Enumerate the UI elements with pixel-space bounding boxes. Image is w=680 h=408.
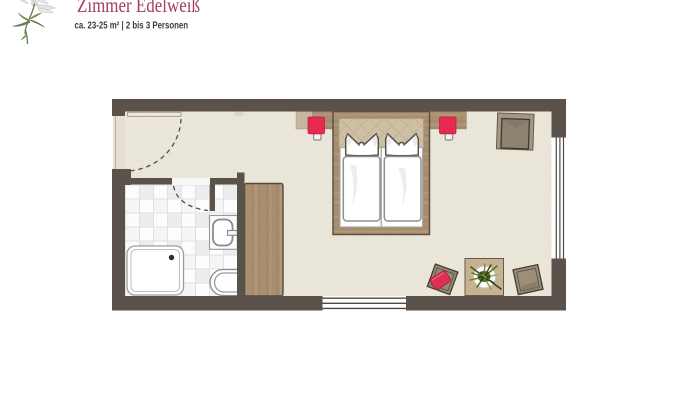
svg-text:Zimmer Edelweiß: Zimmer Edelweiß — [77, 0, 200, 17]
svg-text:ca. 23-25 m² | 2 bis 3 Persone: ca. 23-25 m² | 2 bis 3 Personen — [75, 19, 189, 31]
